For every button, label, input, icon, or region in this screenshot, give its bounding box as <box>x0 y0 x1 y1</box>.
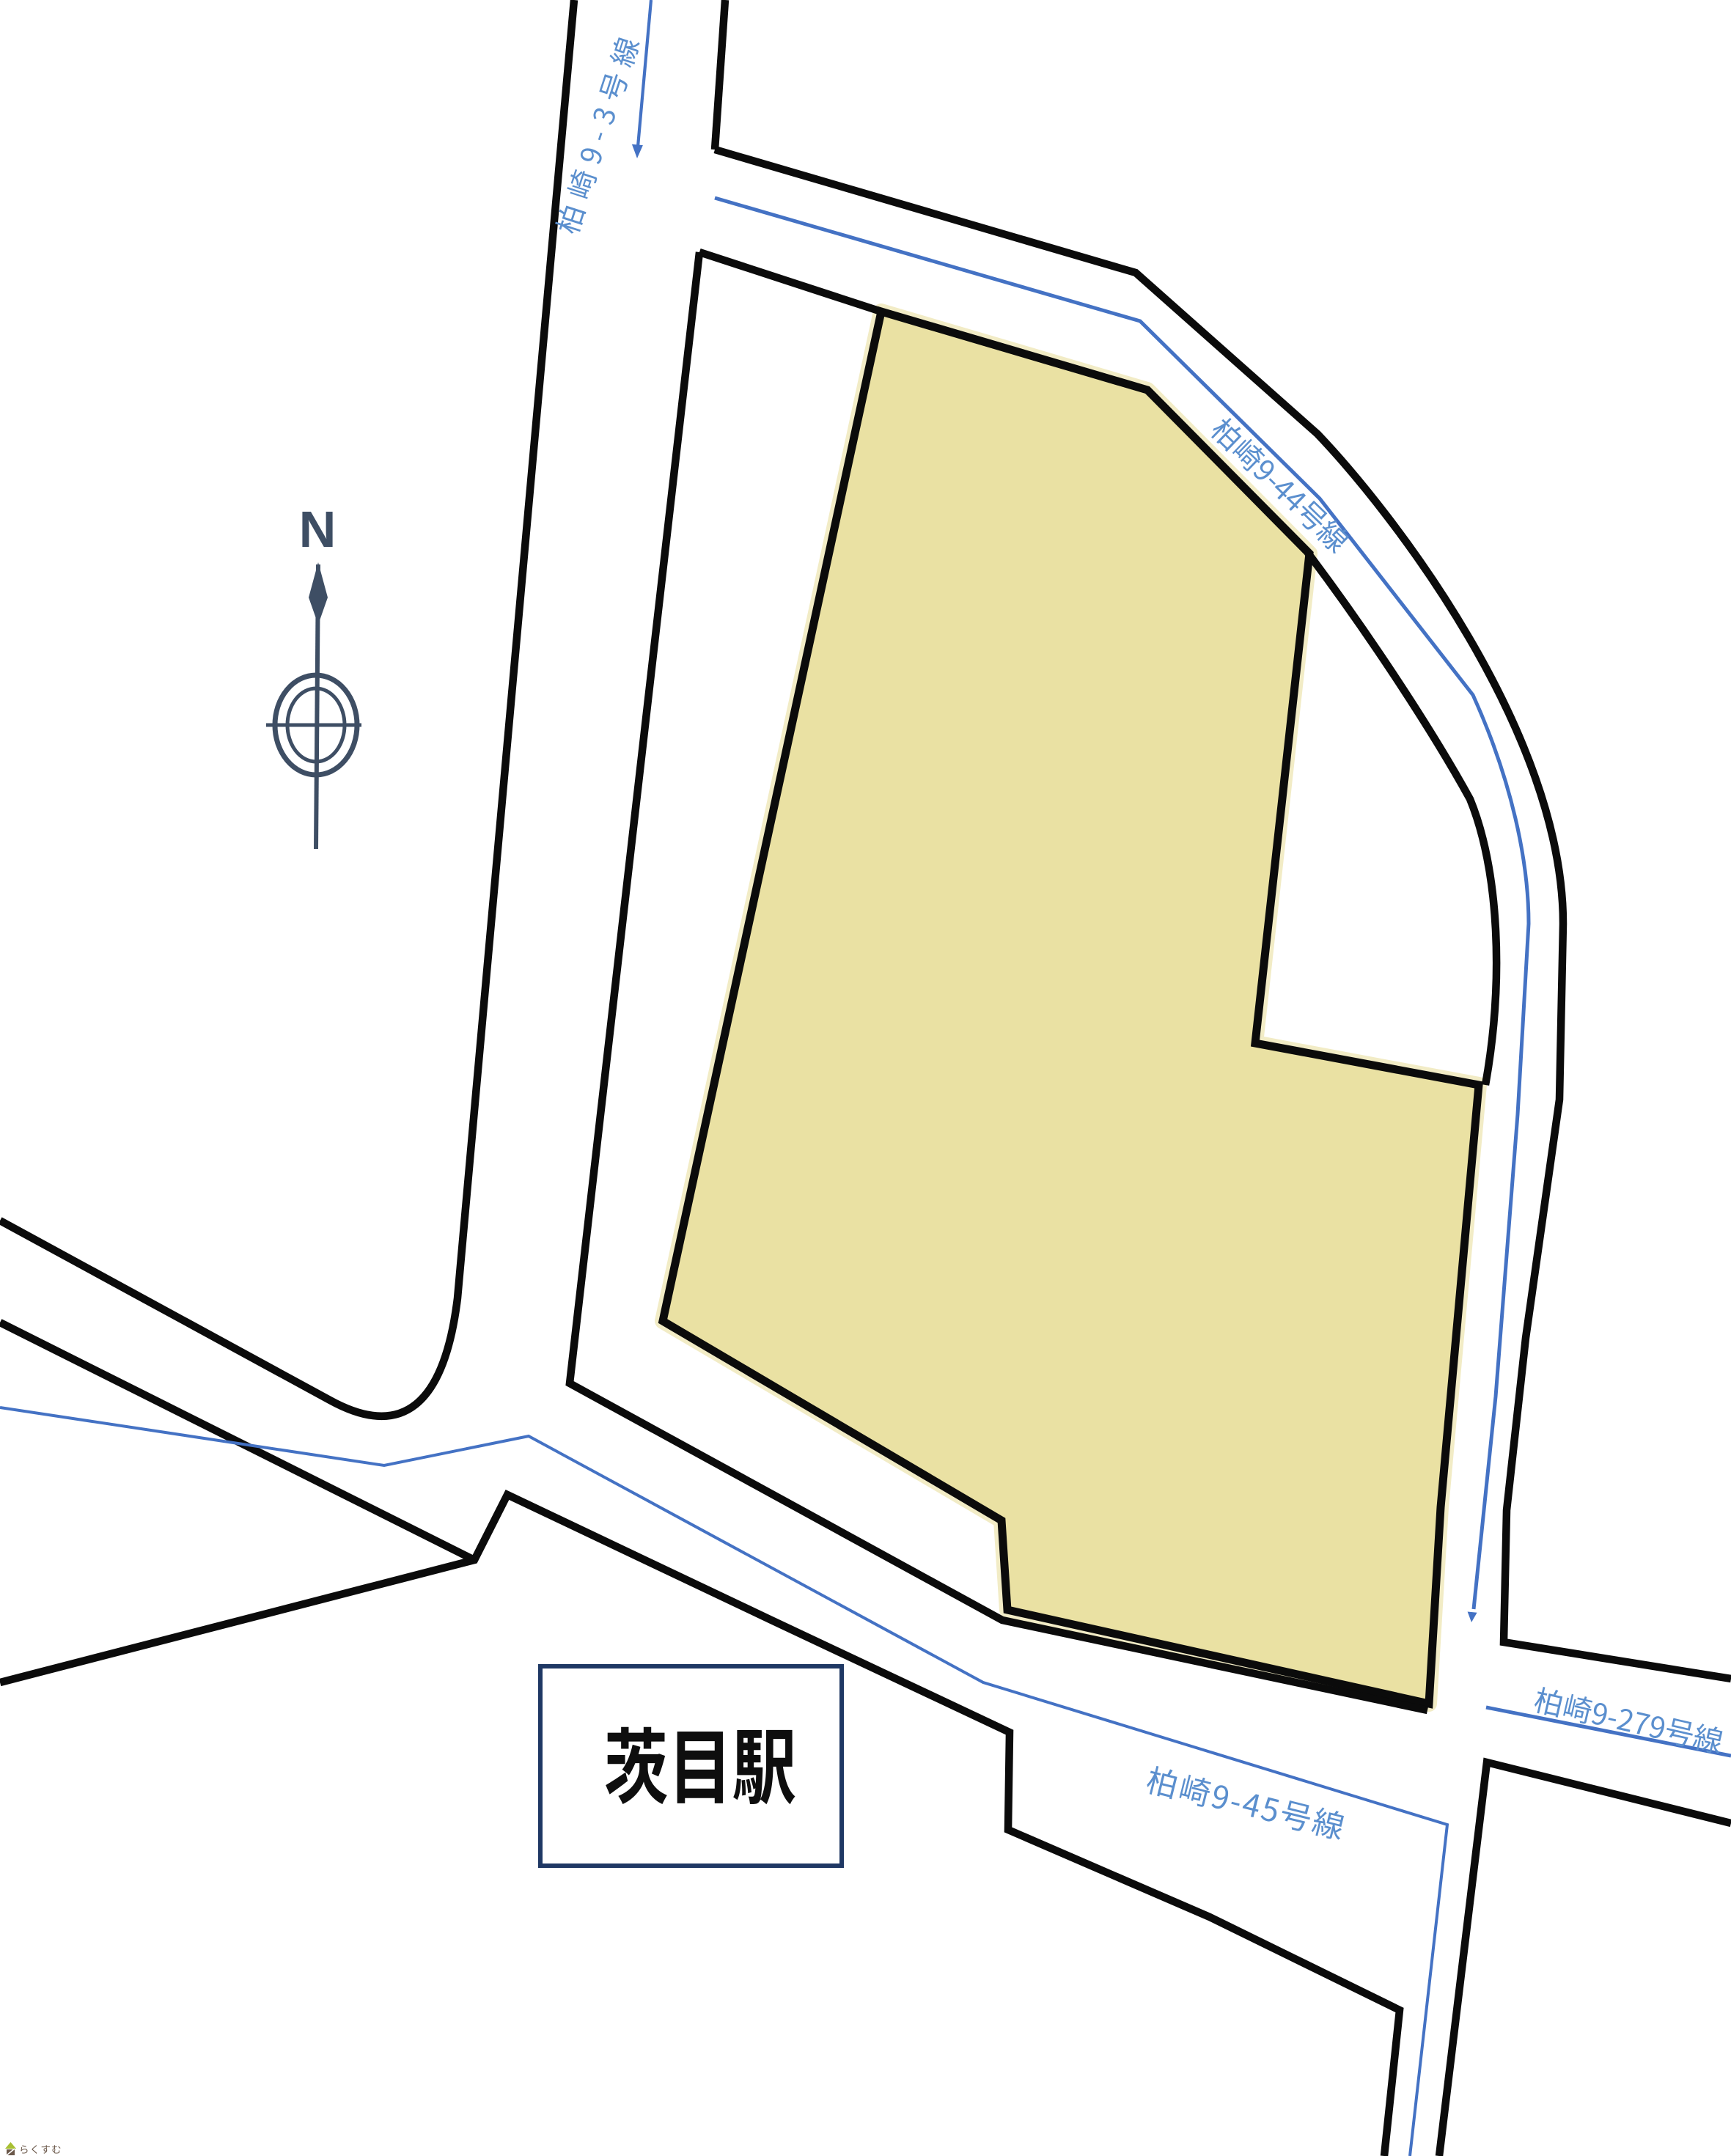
svg-text:N: N <box>299 501 337 558</box>
